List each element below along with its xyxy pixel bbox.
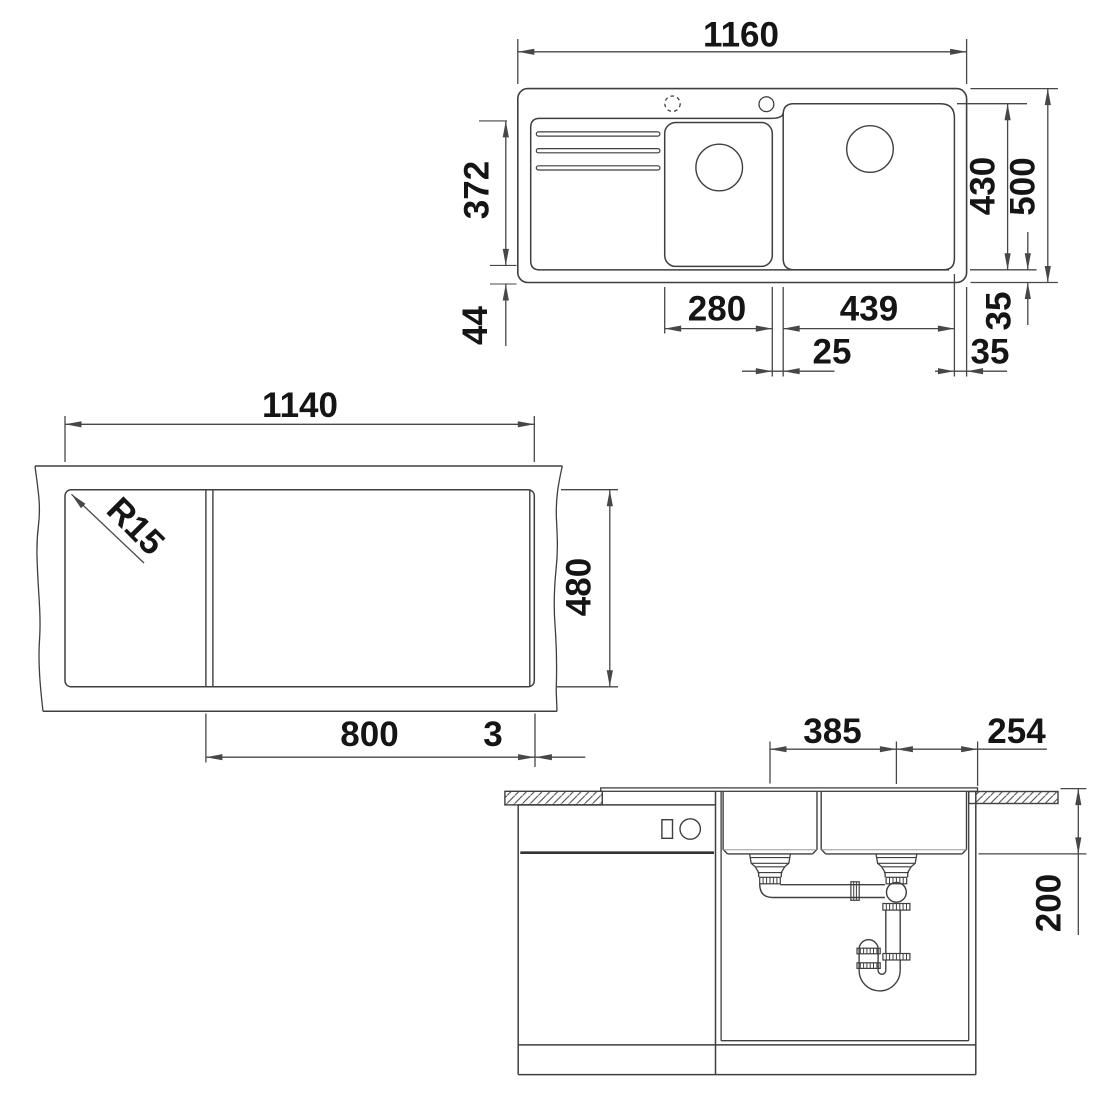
- svg-text:254: 254: [987, 712, 1046, 751]
- svg-text:480: 480: [560, 558, 599, 616]
- svg-text:200: 200: [1030, 874, 1069, 932]
- svg-text:3: 3: [483, 715, 502, 754]
- svg-text:1160: 1160: [703, 16, 779, 55]
- svg-text:500: 500: [1004, 157, 1043, 215]
- svg-text:44: 44: [456, 306, 495, 345]
- svg-text:800: 800: [340, 715, 398, 754]
- svg-text:1140: 1140: [262, 386, 338, 425]
- svg-text:35: 35: [980, 292, 1019, 331]
- svg-text:385: 385: [803, 712, 861, 751]
- svg-text:35: 35: [971, 333, 1010, 372]
- svg-text:372: 372: [458, 161, 497, 219]
- svg-text:439: 439: [840, 290, 898, 329]
- svg-text:280: 280: [688, 290, 746, 329]
- svg-text:25: 25: [813, 333, 852, 372]
- svg-text:430: 430: [964, 157, 1003, 215]
